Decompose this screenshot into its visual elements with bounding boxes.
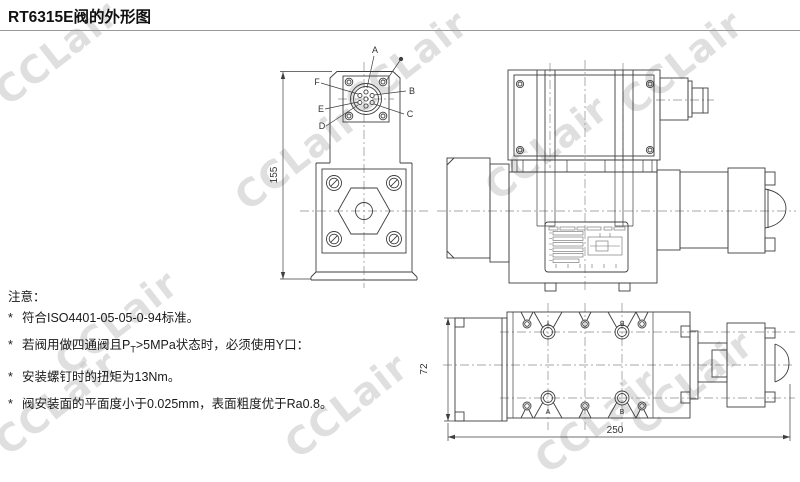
- dim-label-155: 155: [269, 166, 280, 183]
- drawing-page: CCLair CCLair CCLair CCLair CCLair CCLai…: [0, 0, 800, 455]
- pin-label-a: A: [372, 45, 378, 55]
- left-end-block: [455, 318, 507, 421]
- nameplate: [545, 222, 628, 272]
- valve-outline-drawing: A B C D E F 155 72 250 Y B A B: [0, 0, 800, 455]
- pin-label-f: F: [314, 77, 320, 87]
- interface-ticks: [517, 160, 652, 172]
- pin-label-c: C: [407, 109, 414, 119]
- port-label-a: A: [546, 409, 551, 416]
- spacer-block: [490, 164, 509, 262]
- centerlines: [437, 60, 796, 293]
- pin-label-b: B: [409, 86, 415, 96]
- foot: [545, 283, 556, 291]
- solenoid: [657, 168, 786, 253]
- amplifier-box: [508, 70, 660, 160]
- pin-leaders: [321, 56, 406, 126]
- main-body: [509, 172, 657, 283]
- connector-housing: [330, 72, 400, 164]
- dim-label-250: 250: [607, 425, 624, 436]
- port-label-b-top: B: [619, 319, 624, 326]
- side-view: [437, 60, 796, 293]
- pin-label-d: D: [319, 121, 326, 131]
- manual-override-cap: [775, 344, 789, 382]
- interface-strip: [512, 160, 657, 172]
- dim-label-72: 72: [419, 363, 430, 375]
- side-connector: [660, 78, 708, 120]
- foot: [619, 283, 630, 291]
- left-end-block: [447, 158, 490, 258]
- dimension-155: [280, 72, 332, 280]
- port-label-b: B: [620, 409, 625, 416]
- pin-label-e: E: [318, 104, 324, 114]
- dimension-72: [444, 318, 456, 421]
- connector-plate: [343, 76, 389, 122]
- port-label-y: Y: [545, 319, 550, 326]
